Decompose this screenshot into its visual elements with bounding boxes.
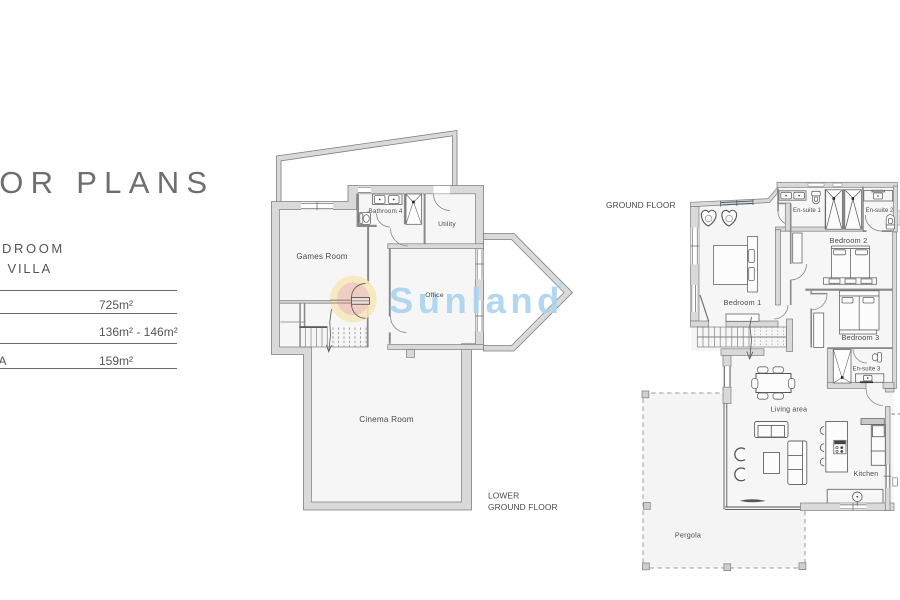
- svg-text:En-suite 2: En-suite 2: [865, 208, 894, 214]
- svg-text:Bedroom 1: Bedroom 1: [724, 298, 762, 307]
- svg-text:Bedroom 3: Bedroom 3: [842, 333, 880, 342]
- svg-text:En-suite 3: En-suite 3: [852, 367, 881, 373]
- svg-text:Bathroom 4: Bathroom 4: [369, 208, 403, 215]
- svg-text:Office: Office: [425, 292, 444, 299]
- svg-text:Bedroom 2: Bedroom 2: [830, 236, 868, 245]
- svg-text:GROUND FLOOR: GROUND FLOOR: [488, 502, 558, 512]
- svg-text:Sunland: Sunland: [389, 280, 564, 321]
- svg-text:Kitchen: Kitchen: [854, 471, 879, 478]
- svg-text:En-suite 1: En-suite 1: [793, 208, 822, 214]
- svg-text:Living area: Living area: [771, 407, 807, 414]
- svg-text:Games Room: Games Room: [296, 252, 347, 261]
- svg-text:LOWER: LOWER: [488, 491, 519, 501]
- svg-text:Utility: Utility: [438, 221, 456, 228]
- svg-text:Cinema Room: Cinema Room: [359, 415, 414, 424]
- svg-text:®: ®: [557, 282, 563, 291]
- svg-text:GROUND FLOOR: GROUND FLOOR: [606, 200, 676, 210]
- svg-text:Pergola: Pergola: [675, 531, 701, 540]
